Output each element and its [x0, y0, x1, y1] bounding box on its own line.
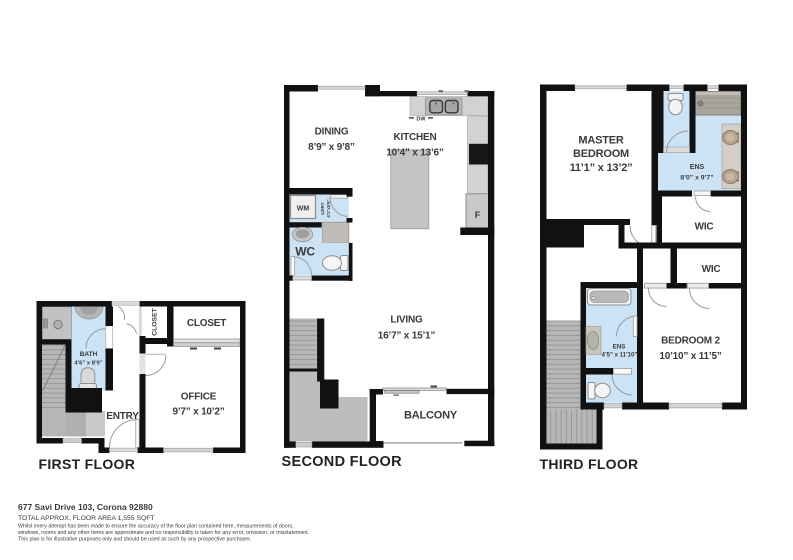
svg-text:Whilst every attempt has been: Whilst every attempt has been made to en… — [18, 524, 294, 530]
svg-text:ENS: ENS — [613, 344, 626, 351]
svg-text:ENS: ENS — [690, 164, 705, 171]
svg-text:FIRST FLOOR: FIRST FLOOR — [39, 456, 136, 472]
svg-text:MASTER: MASTER — [578, 135, 624, 147]
svg-text:11’1” x 13’2”: 11’1” x 13’2” — [570, 162, 633, 174]
svg-text:windows, rooms and any other i: windows, rooms and any other items are a… — [18, 530, 309, 536]
svg-text:DW: DW — [416, 117, 426, 123]
svg-text:SECOND FLOOR: SECOND FLOOR — [282, 454, 403, 470]
svg-text:9’7” x 10’2”: 9’7” x 10’2” — [172, 407, 224, 418]
svg-text:WIC: WIC — [695, 222, 714, 233]
svg-text:10’4” x 13’6”: 10’4” x 13’6” — [386, 148, 444, 159]
svg-text:KITCHEN: KITCHEN — [393, 132, 436, 143]
svg-text:LDRY: LDRY — [320, 202, 325, 214]
svg-text:ENTRY: ENTRY — [106, 411, 139, 422]
svg-text:BEDROOM 2: BEDROOM 2 — [661, 336, 720, 347]
svg-text:WIC: WIC — [702, 264, 721, 275]
svg-text:8’9” x 9’8”: 8’9” x 9’8” — [308, 142, 355, 153]
svg-text:CLOSET: CLOSET — [152, 307, 159, 335]
svg-text:OFFICE: OFFICE — [181, 392, 217, 403]
svg-text:4’5” x 11’10”: 4’5” x 11’10” — [602, 353, 638, 359]
svg-text:WC: WC — [295, 245, 315, 259]
svg-text:BEDROOM: BEDROOM — [573, 148, 629, 160]
svg-text:10’10” x 11’5”: 10’10” x 11’5” — [659, 351, 721, 362]
svg-text:4’6” x 8’9”: 4’6” x 8’9” — [74, 361, 102, 367]
svg-text:677 Savi Drive 103, Corona 928: 677 Savi Drive 103, Corona 92880 — [18, 502, 153, 512]
svg-text:This plan is for illustrative: This plan is for illustrative purposes o… — [18, 537, 251, 543]
svg-text:BALCONY: BALCONY — [404, 410, 458, 422]
svg-text:WM: WM — [297, 206, 310, 213]
svg-text:TOTAL APPROX. FLOOR AREA 1,555: TOTAL APPROX. FLOOR AREA 1,555 SQFT — [18, 515, 155, 522]
svg-text:F: F — [475, 210, 481, 220]
svg-text:BATH: BATH — [80, 351, 98, 358]
svg-text:THIRD FLOOR: THIRD FLOOR — [540, 456, 639, 472]
svg-text:8’0” x 9’7”: 8’0” x 9’7” — [680, 175, 713, 182]
svg-text:CLOSET: CLOSET — [187, 318, 226, 329]
svg-text:16’7” x 15’1”: 16’7” x 15’1” — [378, 331, 436, 342]
svg-text:DINING: DINING — [315, 127, 349, 138]
svg-text:LIVING: LIVING — [390, 315, 423, 326]
